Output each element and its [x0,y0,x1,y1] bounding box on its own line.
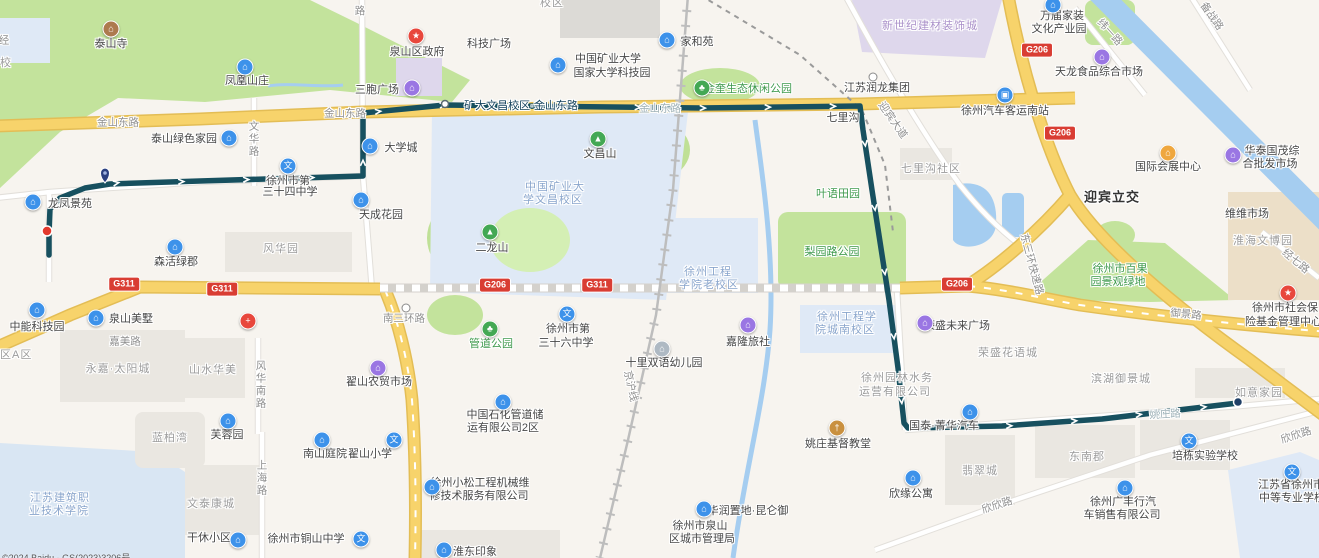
map-label: 叶语田园 [816,185,860,201]
map-label[interactable]: 车销售有限公司 [1084,506,1161,522]
poi-blue-icon[interactable]: ⌂ [167,239,184,256]
map-label[interactable]: 国家大学科技园 [574,64,651,80]
poi-blue-icon[interactable]: ⌂ [29,302,46,319]
map-label[interactable]: 文昌山 [584,145,617,161]
map-label: 梨园路公园 [805,243,860,259]
poi-edu-icon[interactable]: 文 [1284,464,1301,481]
poi-purple-icon[interactable]: ⌂ [917,315,934,332]
poi-edu-icon[interactable]: 文 [1181,433,1198,450]
map-label[interactable]: 淮东印象 [453,543,497,558]
map-label[interactable]: 科技广场 [467,35,511,51]
map-label[interactable]: 区城市管理局 [669,530,735,546]
poi-park-icon[interactable]: ♣ [482,321,499,338]
map-label[interactable]: 大学城 [385,139,418,155]
map-label: 山水华美 [189,361,237,377]
poi-blue-icon[interactable]: ⌂ [353,192,370,209]
road-shield-G311: G311 [206,282,238,297]
map-label[interactable]: 三胞广场 [355,81,399,97]
map-label: 业技术学院 [29,502,89,518]
map-label[interactable]: 文化产业园 [1032,20,1087,36]
poi-blue-icon[interactable]: ⌂ [424,479,441,496]
poi-temple-icon[interactable]: ⌂ [103,21,120,38]
map-label[interactable]: 泉山美墅 [109,310,153,326]
map-label: 矿大文昌校区·金山东路 [464,97,578,113]
poi-purple-icon[interactable]: ⌂ [740,317,757,334]
poi-blue-icon[interactable]: ⌂ [220,413,237,430]
map-label: 金山东路 [639,101,681,116]
map-label: 嘉美路 [109,334,141,349]
route-pin-marker[interactable] [101,168,110,183]
poi-purple-icon[interactable]: ⌂ [404,80,421,97]
poi-blue-icon[interactable]: ⌂ [550,57,567,74]
map-label: 淮海文博园 [1233,232,1293,248]
poi-park-icon[interactable]: ♣ [694,80,711,97]
poi-edu-icon[interactable]: 文 [559,306,576,323]
road-shield-G206: G206 [479,278,511,293]
map-label: 如意家园 [1235,384,1283,400]
map-label: 七里沟社区 [901,160,961,176]
bus-stop-dot[interactable] [442,101,449,108]
map-label: 经 [0,33,9,48]
map-label[interactable]: 险基金管理中心 [1245,313,1319,329]
poi-edu-icon[interactable]: 文 [280,158,297,175]
map-label[interactable]: 维维市场 [1225,205,1269,221]
poi-blue-icon[interactable]: ⌂ [362,138,379,155]
map-label: 文泰康城 [187,495,235,511]
map-label: 上海路 [255,459,270,497]
poi-gov-icon[interactable]: ★ [1280,285,1297,302]
map-label[interactable]: 泰山绿色家园 [151,130,217,146]
poi-blue-icon[interactable]: ⌂ [314,432,331,449]
road-shield-G311: G311 [581,278,613,293]
poi-expo-icon[interactable]: ⌂ [1160,145,1177,162]
map-label: 东南郡 [1069,448,1105,464]
poi-blue-icon[interactable]: ⌂ [88,310,105,327]
junction-dot-icon[interactable] [869,73,878,82]
poi-mtn-icon[interactable]: ▲ [590,131,607,148]
map-label: 校 [0,54,12,70]
poi-church-icon[interactable]: † [829,420,846,437]
junction-dot-icon[interactable] [402,304,411,313]
road-shield-G311: G311 [108,277,140,292]
road-shield-G206: G206 [1044,126,1076,141]
map-label: 区A区 [0,346,32,362]
poi-mtn-icon[interactable]: ▲ [482,224,499,241]
poi-gov-icon[interactable]: ★ [408,28,425,45]
map-label: 滨湖御景城 [1091,370,1151,386]
map-label[interactable]: 天成花园 [359,206,403,222]
map-label[interactable]: 家和苑 [681,33,714,49]
map-label[interactable]: 三十六中学 [539,334,594,350]
poi-blue-icon[interactable]: ⌂ [905,470,922,487]
map-label: 文华路 [247,120,262,158]
map-label: 蓝柏湾 [152,429,188,445]
poi-blue-icon[interactable]: ⌂ [237,59,254,76]
map-label: 学院老校区 [679,276,739,292]
map-label: 金山东路 [324,106,366,121]
map-label[interactable]: 天龙食品综合市场 [1055,63,1143,79]
poi-edu-icon[interactable]: 文 [353,531,370,548]
map-label: 迎宾立交 [1084,187,1140,206]
map-label: 御景路 [1170,305,1203,323]
map-label[interactable]: 嘉隆旅社 [726,333,770,349]
map-label[interactable]: 江苏润龙集团 [844,79,910,95]
map-label[interactable]: 徐州汽车客运南站 [961,102,1049,118]
poi-purple-icon[interactable]: ⌂ [370,360,387,377]
map-label[interactable]: 中能科技园 [10,318,65,334]
map-label: 金奎生态休闲公园 [704,80,792,96]
map-label: 永嘉·太阳城 [86,360,151,376]
poi-blue-icon[interactable]: ⌂ [659,32,676,49]
poi-blue-icon[interactable]: ⌂ [436,542,453,558]
map-label[interactable]: 干休小区 [187,529,231,545]
map-label: 金山东路 [97,115,139,130]
road-shield-G206: G206 [941,277,973,292]
map-label: 学文昌校区 [523,191,583,207]
map-label[interactable]: 运有限公司2区 [467,419,539,435]
map-canvas[interactable]: 泰山寺凤凰山庄泉山区政府三胞广场科技广场中国矿业大学国家大学科技园家和苑金奎生态… [0,0,1319,558]
map-label[interactable]: 荣盛未来广场 [924,317,990,333]
map-label[interactable]: 修技术服务有限公司 [430,487,529,503]
map-label[interactable]: 徐州市铜山中学 [268,530,345,546]
map-label: 南三环路 [383,311,425,326]
poi-blue-icon[interactable]: ⌂ [25,194,42,211]
poi-kind-icon[interactable]: ⌂ [654,341,671,358]
map-label: 校区 [540,0,564,10]
map-label: 荣盛花语城 [978,344,1038,360]
poi-blue-icon[interactable]: ⌂ [230,532,247,549]
map-label: 姚庄路 [1149,406,1181,423]
map-label: 路 [353,5,368,18]
map-label[interactable]: 泉山区政府 [390,43,445,59]
map-label: 风华园 [263,240,299,256]
map-label[interactable]: 合批发市场 [1243,155,1298,171]
map-label: 园景观绿地 [1091,273,1146,289]
map-label: 翡翠城 [962,462,998,478]
map-label[interactable]: 欣缘公寓 [889,485,933,501]
map-label[interactable]: 二龙山 [476,239,509,255]
map-label: 院城南校区 [815,321,875,337]
poi-purple-icon[interactable]: ⌂ [1094,49,1111,66]
poi-blue-icon[interactable]: ⌂ [962,404,979,421]
poi-hosp-icon[interactable]: + [240,313,257,330]
map-label[interactable]: 龙凤景苑 [48,195,92,211]
poi-blue-icon[interactable]: ⌂ [1117,480,1134,497]
map-label[interactable]: 三十四中学 [263,183,318,199]
map-label[interactable]: 中等专业学校 [1259,489,1319,505]
map-label: 新世纪建材装饰城 [882,17,978,33]
map-label[interactable]: 翟山小学 [348,445,392,461]
road-shield-G206: G206 [1021,43,1053,58]
map-label[interactable]: 七里沟 [827,109,860,125]
map-label: 运营有限公司 [859,383,931,399]
poi-blue-icon[interactable]: ⌂ [696,501,713,518]
map-label[interactable]: 姚庄基督教堂 [805,435,871,451]
poi-bus-icon[interactable]: ▣ [997,87,1014,104]
map-label[interactable]: 培栋实验学校 [1172,447,1238,463]
map-label: 风华南路 [254,360,269,410]
poi-purple-icon[interactable]: ⌂ [1225,147,1242,164]
map-label[interactable]: 华润置地·昆仑御 [708,502,789,518]
poi-edu-icon[interactable]: 文 [386,432,403,449]
poi-blue-icon[interactable]: ⌂ [495,394,512,411]
route-terminal-marker[interactable] [42,226,52,236]
poi-blue-icon[interactable]: ⌂ [221,130,238,147]
